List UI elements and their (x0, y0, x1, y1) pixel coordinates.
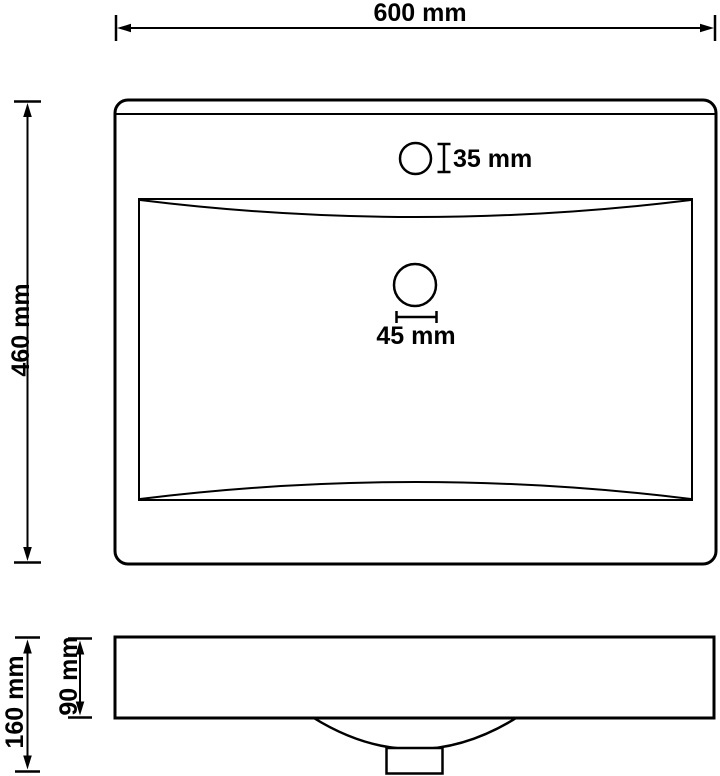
dimension-overall-depth: 460 mm (7, 102, 41, 563)
dim-height-label: 160 mm (1, 655, 29, 748)
dim-depth-arrowhead-bottom (23, 547, 32, 561)
side-view-bowl-curve (313, 718, 517, 750)
sink-technical-drawing: 600 mm 460 mm 35 mm 45 mm 160 mm (0, 0, 720, 776)
side-view-counter-rect (115, 637, 714, 718)
dim-faucet-label: 35 mm (453, 145, 532, 173)
dim-depth-arrowhead-top (23, 103, 32, 117)
dim-depth-label: 460 mm (7, 283, 35, 376)
dim-width-label: 600 mm (373, 0, 466, 27)
dim-height-arrowhead-top (23, 640, 32, 654)
dim-width-arrowhead-left (117, 24, 131, 32)
dim-rim-label: 90 mm (55, 636, 83, 715)
dim-width-arrowhead-right (700, 24, 714, 32)
dimension-rim-height: 90 mm (55, 636, 92, 717)
dim-height-arrowhead-bottom (23, 756, 32, 770)
side-view (115, 637, 714, 774)
side-view-drain-outlet (387, 748, 443, 774)
dimension-overall-width: 600 mm (116, 0, 715, 41)
dimension-total-height: 160 mm (1, 638, 40, 772)
dim-drain-label: 45 mm (376, 322, 455, 350)
